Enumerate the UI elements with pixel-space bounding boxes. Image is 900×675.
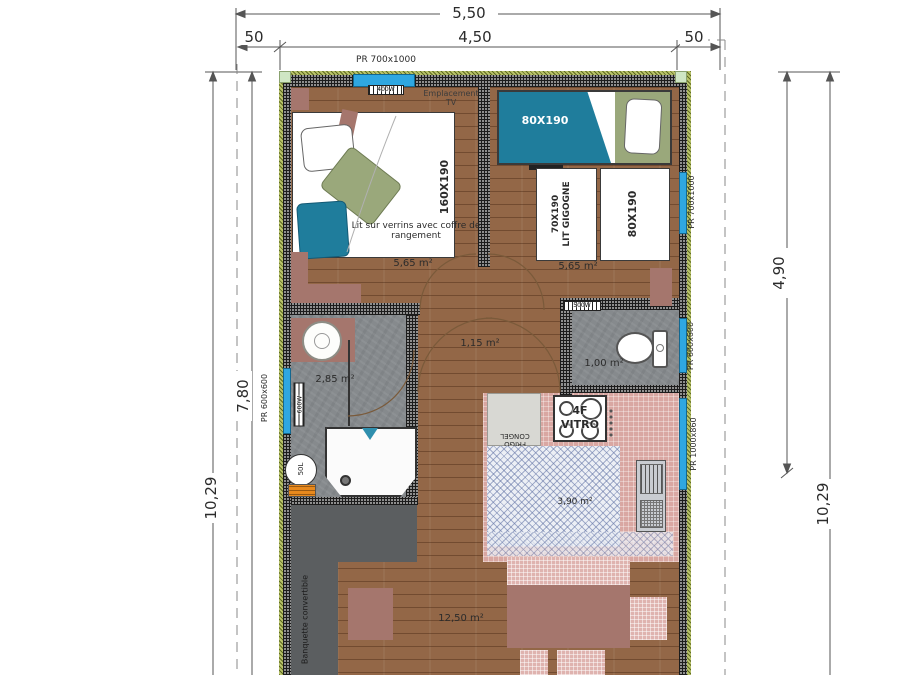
window-right-wc-label: PR 600x600 [687, 317, 699, 375]
window-left-bathroom-label: PR 600x600 [261, 369, 273, 427]
window-right-bedroom-label: PR 700x1000 [688, 170, 700, 234]
dim-top-mid: 4,50 [452, 30, 498, 45]
dim-right-outer: 10,29 [816, 479, 832, 529]
dim-top-left: 50 [240, 30, 268, 45]
dim-top-total: 5,50 [440, 6, 498, 22]
window-right-kitchen-label: PR 1000x860 [690, 412, 702, 476]
dim-left-inner: 7,80 [236, 371, 252, 421]
dimension-and-door-lines [0, 0, 900, 675]
dim-top-right: 50 [680, 30, 708, 45]
dim-right-inner: 4,90 [772, 248, 788, 298]
window-top-label: PR 700x1000 [350, 56, 422, 68]
floor-plan: 160X190 Lit sur verrins avec coffre de r… [0, 0, 900, 675]
dim-left-outer: 10,29 [204, 473, 220, 523]
